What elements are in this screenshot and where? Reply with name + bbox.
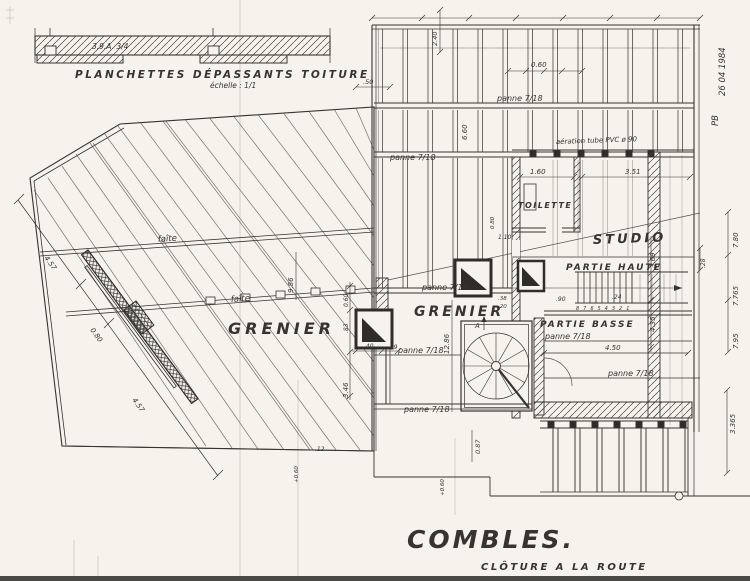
dim-160: 1.60	[530, 168, 546, 176]
detail-caption: PLANCHETTES DÉPASSANTS TOITURE	[75, 68, 370, 81]
note-date: 26 04 1984	[718, 47, 728, 96]
label-toilette: TOILETTE	[518, 201, 572, 210]
label-point-a: A	[474, 322, 480, 330]
dim-090: .90	[556, 296, 566, 303]
dim-040: .40	[364, 343, 374, 350]
dim-038: .38	[498, 296, 507, 302]
dim-346: 3.46	[342, 382, 350, 398]
dim-435: 4.35	[649, 316, 657, 332]
dim-024: .24	[612, 294, 622, 301]
label-studio: STUDIO	[593, 230, 667, 248]
dim-p060-a: +0.60	[294, 466, 300, 483]
drawing-title: COMBLES.	[407, 525, 575, 554]
dim-012: .12	[315, 446, 325, 453]
label-panne-1: panne 7/18	[496, 94, 543, 103]
dim-240: 2.40	[431, 32, 439, 46]
note-initials: PB	[711, 115, 721, 126]
dim-060-left: 0.60	[343, 293, 350, 307]
dim-050: .50	[363, 78, 373, 86]
dim-019: .19	[388, 344, 398, 351]
label-panne-3: panne 7/18	[421, 283, 468, 292]
label-partie-haute: PARTIE HAUTE	[566, 263, 662, 273]
combles-floor-plan: 3.9.A. 3/4 PLANCHETTES DÉPASSANTS TOITUR…	[0, 0, 750, 581]
dim-080-toilette: 0.80	[490, 216, 496, 229]
dim-369: 3.69	[649, 252, 657, 268]
detail-note: 3.9.A. 3/4	[92, 42, 129, 51]
label-panne-2: panne 7/18	[389, 153, 436, 162]
label-partie-basse: PARTIE BASSE	[540, 320, 635, 330]
label-panne-7: panne 7/18	[403, 405, 450, 414]
dim-110: 1.10	[498, 234, 512, 241]
spiral-stair	[461, 316, 532, 411]
label-faite-1: faîte	[158, 234, 178, 245]
dim-083: .83	[343, 323, 350, 333]
dim-795: 7.95	[732, 333, 740, 349]
photo-edge	[0, 576, 750, 581]
dim-060-top: 0.60	[531, 61, 547, 69]
dim-p060-b: +0.60	[440, 479, 446, 496]
dim-660: 6.60	[461, 124, 469, 140]
dim-780: 7.80	[732, 232, 740, 248]
dim-351: 3.51	[625, 168, 641, 176]
drawing-subtitle: CLÔTURE A LA ROUTE	[481, 559, 648, 573]
dim-3365: 3.365	[729, 413, 737, 434]
label-grenier-left: GRENIER	[228, 319, 335, 338]
detail-scale: échelle : 1/1	[210, 81, 256, 90]
label-faite-2: faîte	[231, 294, 251, 305]
label-panne-5: panne 7/18	[544, 332, 591, 341]
floor-joist-field	[540, 421, 688, 500]
dim-1286: 12.86	[443, 333, 451, 354]
dim-7765: 7.765	[732, 285, 740, 306]
blueprint-sheet: 3.9.A. 3/4 PLANCHETTES DÉPASSANTS TOITUR…	[0, 0, 750, 581]
label-panne-4: panne 7/18	[397, 346, 444, 355]
dim-450: 4.50	[605, 344, 621, 352]
dim-986: 9.86	[287, 277, 295, 293]
label-panne-6: panne 7/18	[607, 369, 654, 378]
spiral-wall-band	[534, 318, 544, 415]
dim-028: .28	[700, 258, 707, 268]
label-grenier-right: GRENIER	[414, 304, 504, 320]
dim-087: 0.87	[474, 439, 482, 454]
